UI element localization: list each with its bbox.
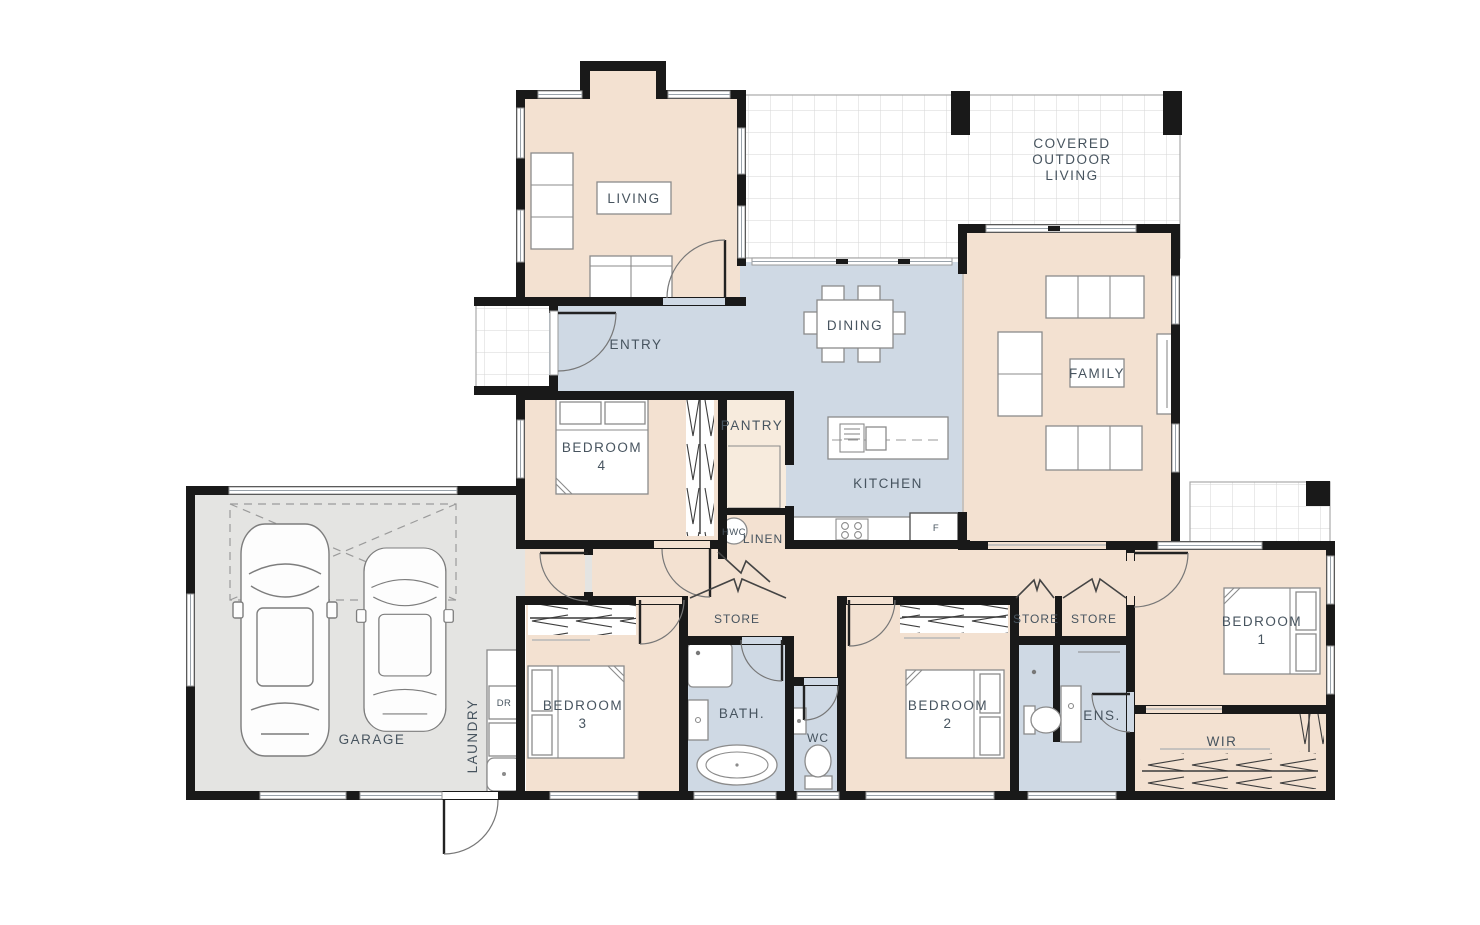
svg-text:1: 1: [1257, 632, 1266, 647]
svg-text:OUTDOOR: OUTDOOR: [1032, 152, 1112, 167]
pantry-label: PANTRY: [721, 418, 784, 433]
family-label: FAMILY: [1069, 366, 1125, 381]
toilet-icon: [805, 776, 832, 789]
post-icon: [1306, 481, 1330, 506]
entry-porch: [476, 304, 550, 388]
svg-text:3: 3: [578, 716, 587, 731]
sofa-icon: [1046, 276, 1144, 318]
svg-text:2: 2: [943, 716, 952, 731]
bed-icon: [906, 670, 1004, 758]
svg-text:LIVING: LIVING: [1045, 168, 1098, 183]
vanity-icon: [688, 700, 708, 740]
shower-icon: [688, 643, 732, 687]
fridge-label: F: [933, 523, 939, 534]
bath-label: BATH.: [719, 706, 765, 721]
post-icon: [951, 91, 970, 135]
car-icon: [357, 548, 454, 731]
covered-outdoor-living-label: COVERED: [1033, 136, 1110, 151]
floor-plan-page: LIVING COVERED OUTDOOR LIVING ENTRY DINI…: [0, 0, 1480, 925]
bedroom1-label: BEDROOM: [1222, 614, 1302, 629]
kitchen-island-icon: [828, 417, 948, 459]
store-a-label: STORE: [1013, 612, 1059, 626]
wc-label: WC: [807, 731, 829, 745]
car-icon: [233, 524, 337, 756]
washer-icon: [489, 723, 520, 756]
floor-plan-drawing: LIVING COVERED OUTDOOR LIVING ENTRY DINI…: [0, 0, 1480, 925]
svg-text:4: 4: [597, 458, 606, 473]
post-icon: [1163, 91, 1182, 135]
bedroom4-label: BEDROOM: [562, 440, 642, 455]
store-label: STORE: [714, 612, 760, 626]
dining-label: DINING: [827, 318, 883, 333]
wir-label: WIR: [1207, 734, 1238, 749]
store-b-label: STORE: [1071, 612, 1117, 626]
sofa-icon: [531, 153, 573, 249]
ensuite-label: ENS.: [1083, 708, 1121, 723]
kitchen-label: KITCHEN: [853, 476, 923, 491]
vanity-icon: [1061, 686, 1081, 742]
bedroom2-label: BEDROOM: [908, 698, 988, 713]
garage-label: GARAGE: [339, 732, 406, 747]
laundry-label: LAUNDRY: [465, 699, 480, 774]
dryer-label: DR: [497, 698, 512, 709]
living-label: LIVING: [607, 191, 660, 206]
entry-label: ENTRY: [609, 337, 662, 352]
front-door-frame: [550, 311, 558, 375]
bedroom3-label: BEDROOM: [543, 698, 623, 713]
shower-icon: [1032, 670, 1036, 674]
sofa-icon: [1046, 426, 1142, 470]
linen-label: LINEN: [743, 532, 783, 546]
bed-icon: [1224, 588, 1320, 674]
